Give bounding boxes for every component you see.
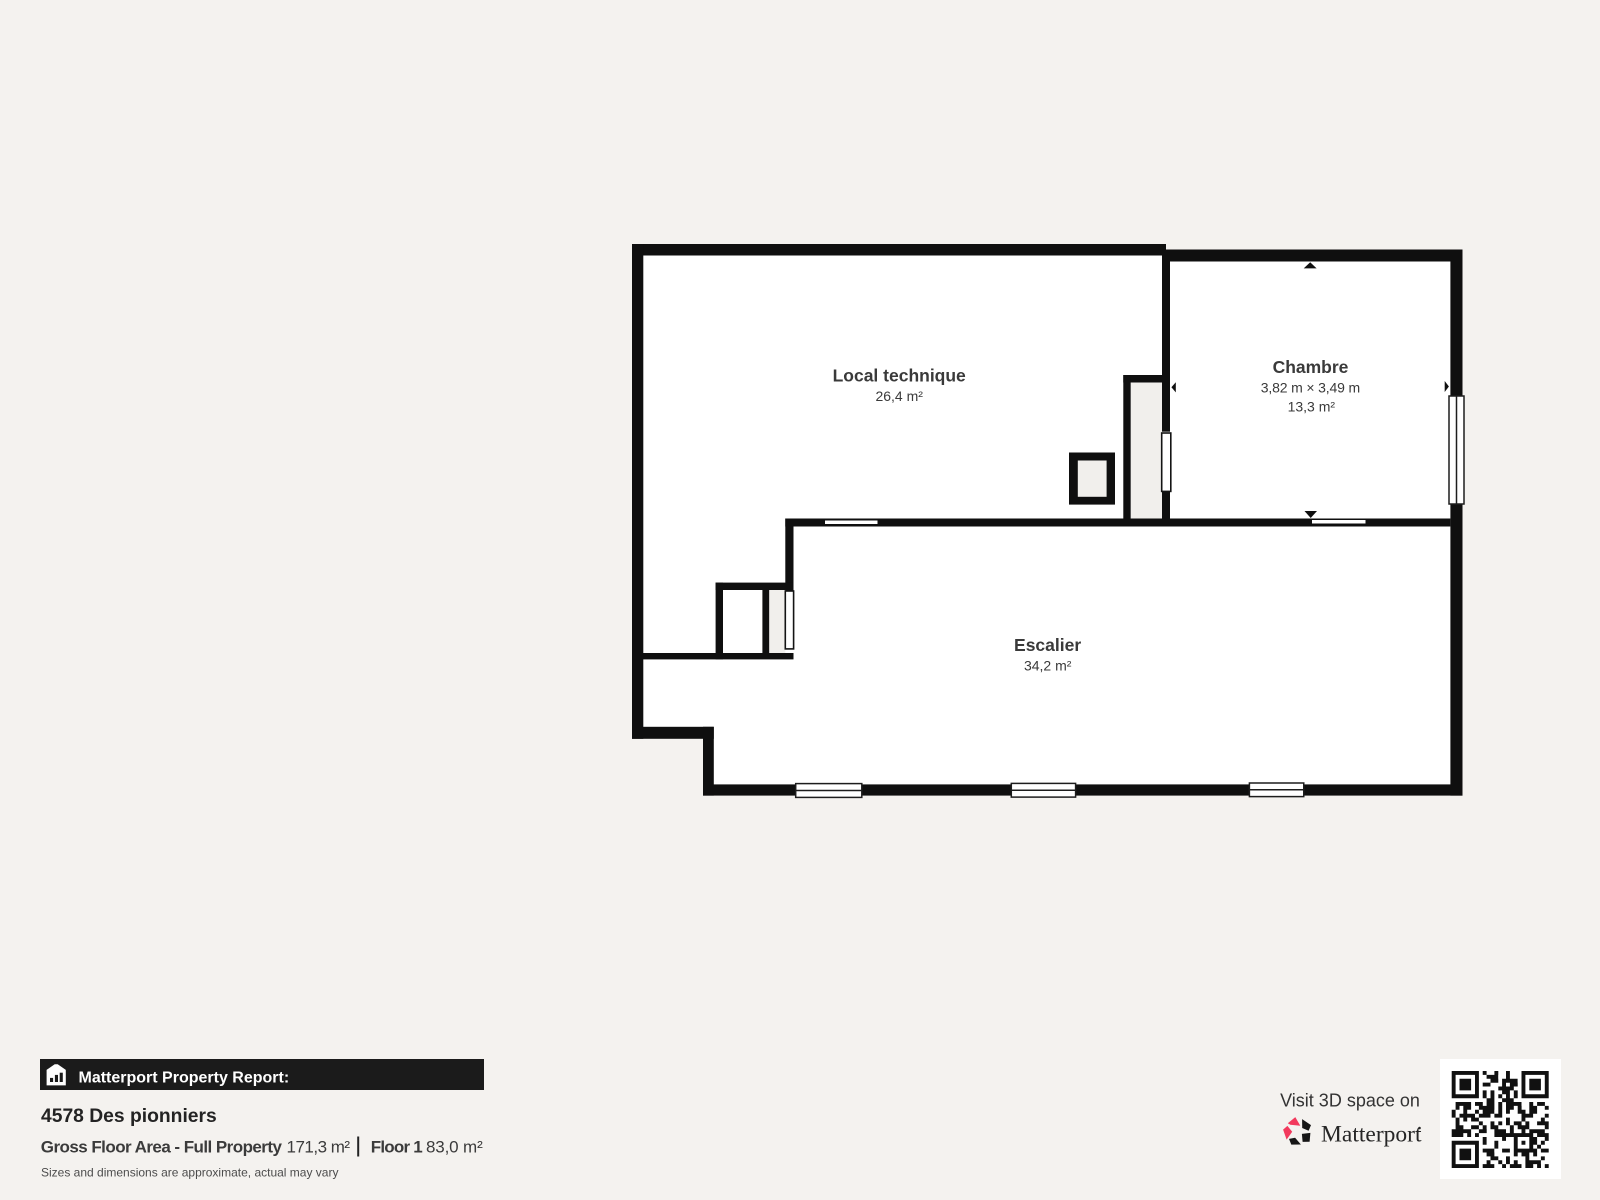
svg-text:Visit 3D space on: Visit 3D space on: [1280, 1090, 1420, 1110]
svg-text:26,4 m²: 26,4 m²: [875, 388, 923, 404]
svg-text:Chambre: Chambre: [1273, 357, 1349, 377]
svg-text:Local technique: Local technique: [833, 365, 966, 385]
svg-text:Escalier: Escalier: [1014, 635, 1081, 655]
svg-text:Matterport Property Report:: Matterport Property Report:: [79, 1069, 290, 1086]
svg-text:171,3 m²: 171,3 m²: [287, 1138, 351, 1157]
svg-text:4578 Des pionniers: 4578 Des pionniers: [41, 1106, 217, 1127]
svg-text:Matterport: Matterport: [1321, 1121, 1422, 1147]
svg-text:34,2 m²: 34,2 m²: [1024, 658, 1072, 674]
svg-text:83,0 m²: 83,0 m²: [426, 1138, 483, 1157]
svg-text:13,3 m²: 13,3 m²: [1288, 398, 1336, 414]
svg-text:Floor 1: Floor 1: [371, 1138, 422, 1157]
svg-text:Gross Floor Area - Full Proper: Gross Floor Area - Full Property: [41, 1138, 283, 1157]
svg-text:Sizes and dimensions are appro: Sizes and dimensions are approximate, ac…: [41, 1166, 338, 1180]
svg-text:3,82 m × 3,49 m: 3,82 m × 3,49 m: [1261, 380, 1360, 396]
